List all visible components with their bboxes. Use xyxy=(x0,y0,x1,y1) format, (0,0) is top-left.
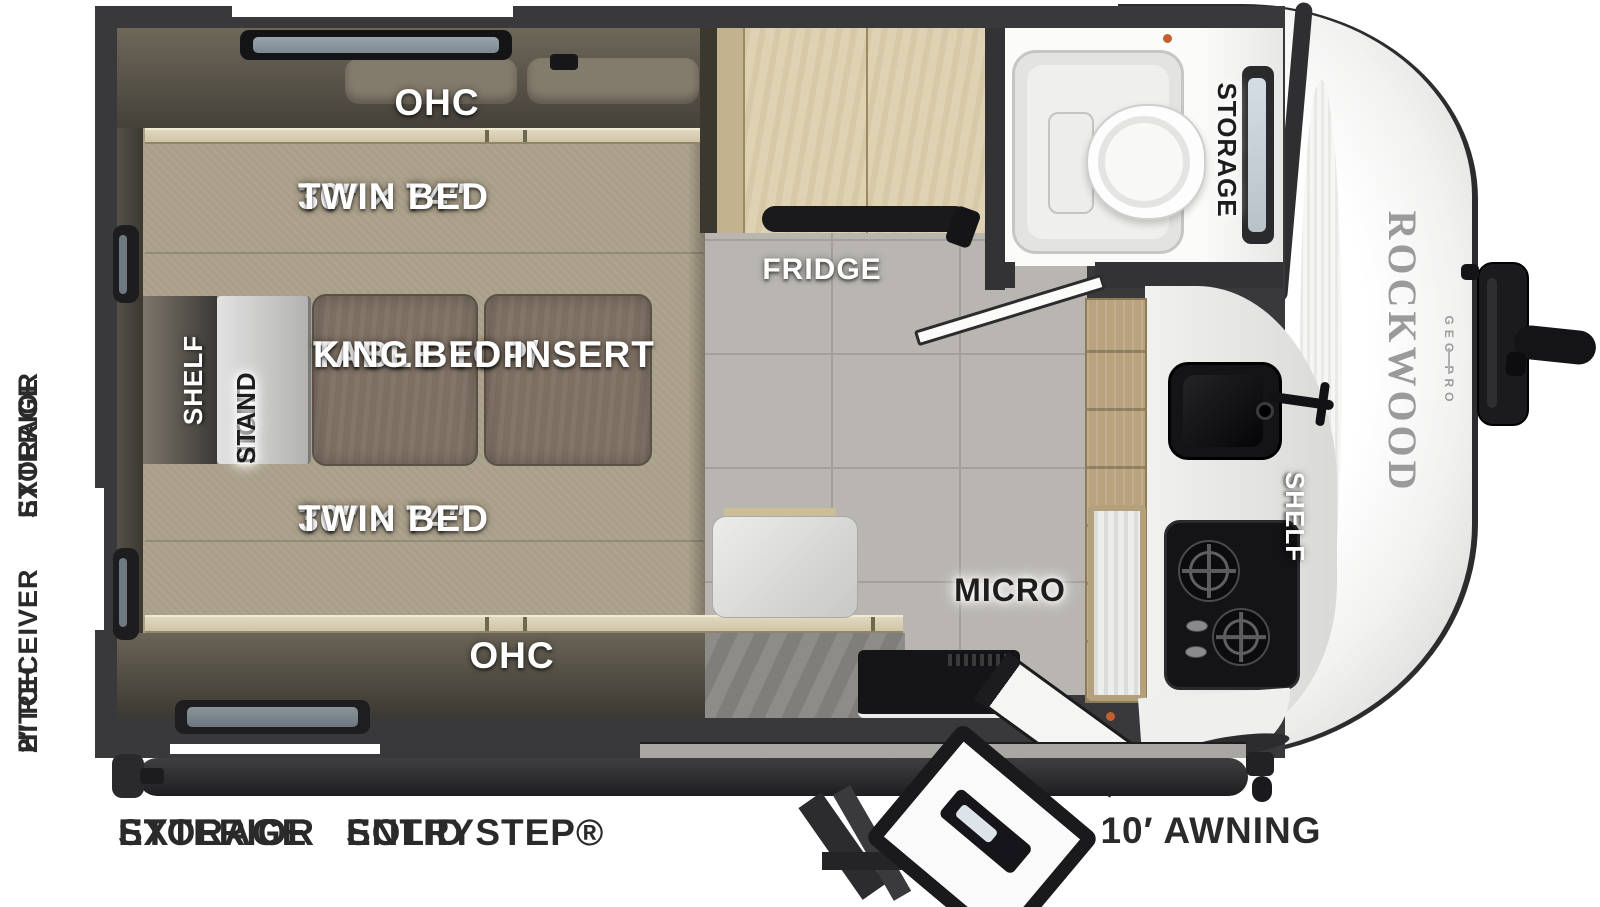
rail-notch xyxy=(485,617,489,631)
rail-notch xyxy=(485,130,489,142)
hitch-knob xyxy=(1505,351,1527,377)
bumper-bracket xyxy=(140,768,164,784)
awning-roll xyxy=(138,758,1248,796)
hitch-nub xyxy=(1461,264,1479,280)
label-receiver-hitch: 2″ RECEIVER HITCH xyxy=(11,473,81,753)
burner-icon xyxy=(1178,540,1240,602)
brand-rule xyxy=(1448,348,1450,374)
cooktop-knob xyxy=(1186,620,1208,632)
label-bath-storage: STORAGE xyxy=(1213,60,1243,240)
overhead-window-glass xyxy=(253,37,499,53)
awning-hinge xyxy=(1246,752,1274,776)
hitch-text-2: HITCH xyxy=(11,666,45,754)
entry-text-2: ENTRY xyxy=(346,812,475,854)
burner-ring xyxy=(1223,619,1260,656)
marker-light xyxy=(1163,34,1172,43)
burner-ring xyxy=(1189,551,1228,590)
brand-rockwood: ROCKWOOD xyxy=(1378,152,1426,552)
cabinet-latch xyxy=(550,54,578,70)
cooktop-knob xyxy=(1185,646,1207,658)
night-stand-text-2: STAND xyxy=(230,371,262,464)
label-night-stand: NIGHT STAND xyxy=(230,294,296,464)
label-micro: MICRO xyxy=(890,572,1130,609)
bed-name-text: TWIN BED xyxy=(298,176,489,218)
fridge-cabinet-seam xyxy=(866,28,868,233)
rear-window xyxy=(113,548,139,640)
brand-geo-pro: GEO PRO xyxy=(1440,276,1458,446)
bathroom-wall xyxy=(1095,262,1283,288)
awning-hinge xyxy=(1252,776,1272,802)
tongue-jack-detail xyxy=(1487,278,1497,408)
table-top-panel xyxy=(312,294,478,466)
label-kitchen-shelf: SHELF xyxy=(1281,437,1311,597)
toilet-seat xyxy=(1098,116,1190,208)
bottom-wall-hatch xyxy=(170,744,380,754)
bathroom-wall xyxy=(985,28,1005,290)
sink-drain xyxy=(1256,402,1274,420)
rail-notch xyxy=(523,130,527,142)
door-side-window-glass xyxy=(187,707,358,727)
label-bedroom-shelf: SHELF xyxy=(177,295,207,465)
label-ohc-top: OHC xyxy=(337,82,537,124)
label-awning: 10′ AWNING xyxy=(1041,810,1381,852)
table-top-panel xyxy=(484,294,652,466)
bathroom-wall xyxy=(985,262,1015,288)
rail-notch xyxy=(871,617,875,631)
removable-table xyxy=(712,516,858,618)
label-ohc-bottom: OHC xyxy=(412,635,612,677)
rear-window-glass xyxy=(119,235,127,294)
fridge-handle xyxy=(762,206,968,232)
bed-seam xyxy=(145,252,703,254)
fridge-cabinet-side xyxy=(717,28,745,233)
bed-rail-top xyxy=(145,128,717,144)
rear-window xyxy=(113,225,139,303)
bed-seam xyxy=(145,540,703,542)
top-wall-window xyxy=(232,6,513,17)
burner-icon xyxy=(1212,608,1270,666)
table-text-2: KING BED INSERT xyxy=(313,334,655,376)
sink-basin xyxy=(1183,375,1263,447)
floorplan-canvas: OHC 30″ × 74″ TWIN BED TABLE TOP/ KING B… xyxy=(0,0,1600,907)
rail-notch xyxy=(523,617,527,631)
rear-wall-window xyxy=(95,488,104,630)
bed-name-text: TWIN BED xyxy=(298,498,489,540)
exterior-storage-text-2: STORAGE xyxy=(118,812,307,854)
label-fridge: FRIDGE xyxy=(702,253,942,287)
rear-window-glass xyxy=(119,558,127,627)
storage-compartment-glass xyxy=(1248,78,1266,232)
marker-light xyxy=(1106,712,1115,721)
